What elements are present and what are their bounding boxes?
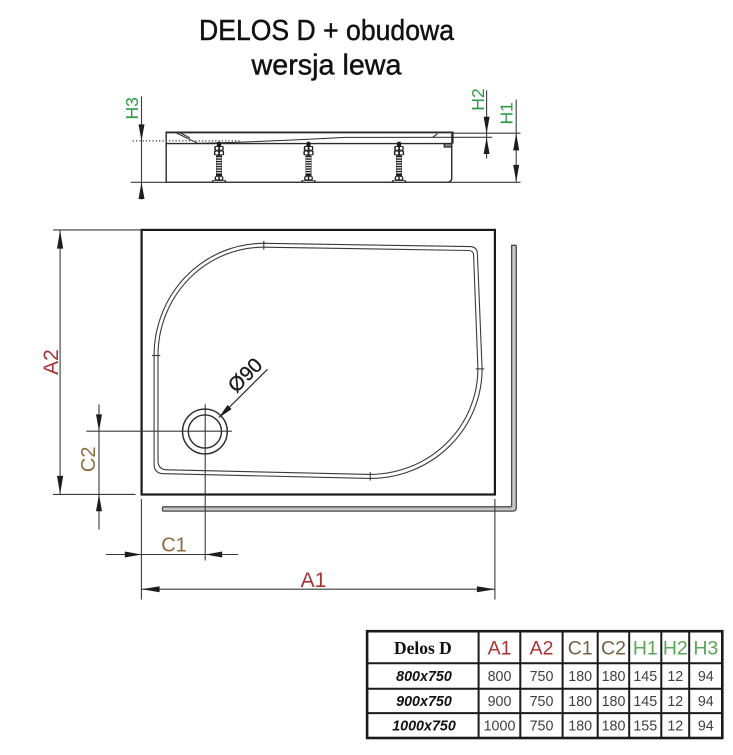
svg-text:H2: H2 (468, 88, 488, 110)
svg-text:180: 180 (602, 669, 626, 685)
svg-text:1000x750: 1000x750 (392, 719, 456, 735)
svg-text:180: 180 (568, 669, 592, 685)
svg-text:750: 750 (530, 669, 554, 685)
svg-text:1000: 1000 (484, 719, 516, 735)
svg-text:800: 800 (488, 669, 512, 685)
svg-text:145: 145 (633, 694, 657, 710)
svg-text:145: 145 (633, 669, 657, 685)
svg-text:800x750: 800x750 (396, 669, 452, 685)
svg-text:H3: H3 (693, 638, 718, 660)
svg-text:180: 180 (602, 694, 626, 710)
svg-text:wersja lewa: wersja lewa (250, 50, 401, 82)
svg-text:12: 12 (667, 694, 683, 710)
svg-text:A1: A1 (488, 638, 512, 660)
svg-text:H1: H1 (633, 638, 658, 660)
svg-text:180: 180 (568, 719, 592, 735)
svg-text:C2: C2 (601, 638, 626, 660)
svg-text:A2: A2 (40, 349, 63, 375)
svg-text:94: 94 (698, 719, 714, 735)
svg-text:900: 900 (488, 694, 512, 710)
svg-text:155: 155 (633, 719, 657, 735)
svg-text:H3: H3 (122, 97, 142, 119)
svg-text:Delos D: Delos D (394, 638, 452, 658)
svg-text:750: 750 (530, 694, 554, 710)
svg-text:A2: A2 (530, 638, 554, 660)
svg-text:C1: C1 (568, 638, 593, 660)
svg-text:180: 180 (568, 694, 592, 710)
svg-text:C2: C2 (78, 447, 100, 473)
svg-text:12: 12 (667, 669, 683, 685)
svg-text:750: 750 (530, 719, 554, 735)
svg-text:H2: H2 (663, 638, 688, 660)
svg-text:12: 12 (667, 719, 683, 735)
svg-text:H1: H1 (497, 102, 517, 124)
svg-text:94: 94 (698, 669, 714, 685)
svg-text:180: 180 (602, 719, 626, 735)
svg-text:900x750: 900x750 (396, 694, 452, 710)
svg-text:94: 94 (698, 694, 714, 710)
svg-text:C1: C1 (161, 535, 187, 557)
svg-text:DELOS D + obudowa: DELOS D + obudowa (199, 15, 454, 47)
svg-text:A1: A1 (301, 569, 327, 592)
